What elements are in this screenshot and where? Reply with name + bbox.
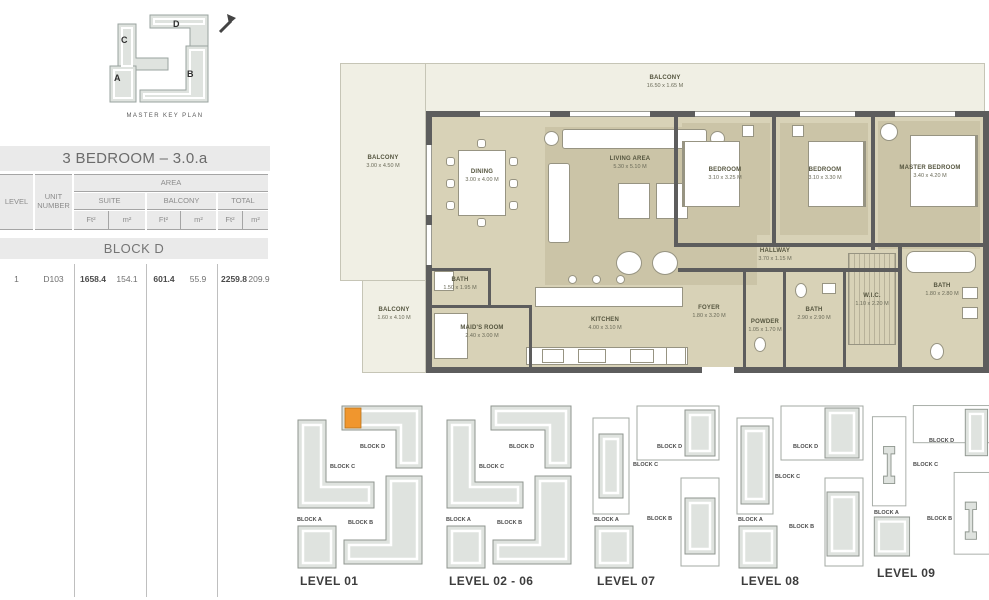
col-header-unit-number: UNIT NUMBER (35, 174, 72, 230)
block-header: BLOCK D (0, 238, 268, 259)
level-plan-08-drawing (729, 398, 869, 570)
room-label-balcony-bottom: BALCONY 1.60 x 4.10 M (366, 307, 422, 321)
block-d-label: BLOCK D (360, 444, 385, 450)
dining-chair (477, 218, 486, 227)
wall (674, 117, 678, 245)
room-label-living: LIVING AREA 5.30 x 5.10 M (585, 156, 675, 170)
room-label-bath1: BATH 1.50 x 1.95 M (432, 277, 488, 291)
block-b-label: BLOCK B (497, 520, 522, 526)
key-block-d-letter: D (173, 19, 180, 29)
block-c-label: BLOCK C (775, 474, 800, 480)
room-label-hallway: HALLWAY 3.70 x 1.15 M (735, 248, 815, 262)
stove (578, 349, 606, 363)
level-plan-01-drawing (288, 398, 428, 570)
level-label: LEVEL 01 (300, 574, 358, 588)
toilet (754, 337, 766, 352)
level-plan-07: BLOCK D BLOCK C BLOCK A BLOCK B LEVEL 07 (585, 398, 733, 600)
row-balcony-m2: 55.9 (182, 271, 214, 287)
room-label-master-bedroom: MASTER BEDROOM 3.40 x 4.20 M (898, 165, 962, 179)
row-level: 1 (0, 271, 33, 287)
block-a-label: BLOCK A (446, 517, 471, 523)
wall (432, 305, 532, 308)
dining-chair (477, 139, 486, 148)
level-plan-01: BLOCK D BLOCK C BLOCK A BLOCK B LEVEL 01 (288, 398, 436, 600)
sofa (548, 163, 570, 243)
nightstand (742, 125, 754, 137)
armchair (880, 123, 898, 141)
key-block-a-letter: A (114, 73, 121, 83)
level-plan-09-drawing (865, 398, 989, 558)
dining-chair (509, 201, 518, 210)
level-plan-07-drawing (585, 398, 725, 570)
room-label-bath2: BATH 2.90 x 2.90 M (786, 307, 842, 321)
block-d-label: BLOCK D (929, 438, 954, 444)
block-a-label: BLOCK A (738, 517, 763, 523)
room-label-bath3: BATH 1.80 x 2.80 M (910, 283, 974, 297)
block-d-label: BLOCK D (509, 444, 534, 450)
room-label-bedroom1: BEDROOM 3.10 x 3.25 M (685, 167, 765, 181)
page-title: 3 BEDROOM – 3.0.a (0, 146, 270, 171)
block-b-label: BLOCK B (348, 520, 373, 526)
nightstand (792, 125, 804, 137)
master-key-plan-drawing (90, 10, 240, 110)
side-table (544, 131, 559, 146)
col-header-total-m2: m² (243, 211, 268, 230)
row-total-m2: 209.9 (245, 271, 273, 287)
wall (871, 117, 875, 250)
master-key-plan-caption: MASTER KEY PLAN (85, 113, 245, 119)
level-label: LEVEL 02 - 06 (449, 574, 533, 588)
room-label-powder: POWDER 1.05 x 1.70 M (744, 319, 786, 333)
toilet (930, 343, 944, 360)
balcony-door (426, 145, 432, 215)
bar-stool (568, 275, 577, 284)
block-b-label: BLOCK B (927, 516, 952, 522)
wall (983, 111, 989, 373)
key-block-b-letter: B (187, 69, 194, 79)
level-label: LEVEL 09 (877, 566, 935, 580)
level-label: LEVEL 07 (597, 574, 655, 588)
block-c-label: BLOCK C (479, 464, 504, 470)
level-plan-08: BLOCK D BLOCK C BLOCK A BLOCK B LEVEL 08 (729, 398, 877, 600)
room-label-balcony-top: BALCONY 16.50 x 1.65 M (620, 75, 710, 89)
floor-plan-sheet: D C B A MASTER KEY PLAN 3 BEDROOM – 3.0.… (0, 0, 989, 600)
toilet (795, 283, 807, 298)
wall (843, 270, 846, 367)
bar-stool (592, 275, 601, 284)
room-label-bedroom2: BEDROOM 3.10 x 3.30 M (785, 167, 865, 181)
armchair (652, 251, 678, 275)
wall (772, 117, 776, 245)
window (895, 111, 955, 117)
col-header-balcony: BALCONY (147, 193, 216, 210)
room-label-wic: W.I.C. 1.10 x 2.20 M (845, 293, 899, 307)
washbasin (822, 283, 836, 294)
wall (432, 268, 490, 271)
block-c-label: BLOCK C (913, 462, 938, 468)
col-header-area: AREA (74, 174, 268, 192)
col-header-suite-ft2: Ft² (74, 211, 109, 230)
block-d-label: BLOCK D (793, 444, 818, 450)
block-d-label: BLOCK D (657, 444, 682, 450)
key-block-c-letter: C (121, 35, 128, 45)
level-plan-09: BLOCK D BLOCK C BLOCK A BLOCK B LEVEL 09 (865, 398, 989, 600)
window (570, 111, 650, 117)
level-label: LEVEL 08 (741, 574, 799, 588)
balcony-left (340, 63, 426, 281)
washbasin (962, 307, 978, 319)
row-balcony-ft2: 601.4 (148, 271, 180, 287)
block-b-label: BLOCK B (647, 516, 672, 522)
window (800, 111, 855, 117)
wall (678, 268, 900, 272)
room-label-foyer: FOYER 1.80 x 3.20 M (677, 305, 741, 319)
block-c-label: BLOCK C (633, 462, 658, 468)
entrance-door-opening (702, 367, 734, 373)
fridge (666, 347, 686, 365)
north-arrow-icon (220, 14, 236, 32)
window (480, 111, 550, 117)
bathtub (906, 251, 976, 273)
oven (630, 349, 654, 363)
dining-chair (509, 157, 518, 166)
col-header-suite-m2: m² (109, 211, 145, 230)
row-unit-number: D103 (35, 271, 72, 287)
window (426, 225, 432, 265)
block-c-label: BLOCK C (330, 464, 355, 470)
block-a-label: BLOCK A (594, 517, 619, 523)
master-key-plan: D C B A MASTER KEY PLAN (85, 5, 245, 130)
dining-chair (446, 201, 455, 210)
col-header-total-ft2: Ft² (218, 211, 243, 230)
balcony-bottom-left (362, 280, 426, 373)
wall (674, 243, 983, 247)
col-header-balcony-m2: m² (181, 211, 216, 230)
table-grid-line (146, 264, 147, 597)
room-label-maids-room: MAID'S ROOM 2.40 x 3.00 M (442, 325, 522, 339)
row-suite-m2: 154.1 (111, 271, 143, 287)
col-header-balcony-ft2: Ft² (147, 211, 181, 230)
room-label-balcony-left: BALCONY 3.00 x 4.50 M (348, 155, 418, 169)
col-header-level: LEVEL (0, 174, 33, 230)
block-b-label: BLOCK B (789, 524, 814, 530)
dining-chair (446, 157, 455, 166)
kitchen-island (535, 287, 683, 307)
room-label-kitchen: KITCHEN 4.00 x 3.10 M (565, 317, 645, 331)
armchair (616, 251, 642, 275)
room-label-dining: DINING 3.00 x 4.00 M (447, 169, 517, 183)
table-grid-line (74, 264, 75, 597)
block-a-label: BLOCK A (874, 510, 899, 516)
level-plan-02-06-drawing (437, 398, 577, 570)
block-a-label: BLOCK A (297, 517, 322, 523)
col-header-suite: SUITE (74, 193, 145, 210)
wall (529, 305, 532, 367)
bar-stool (616, 275, 625, 284)
coffee-table (618, 183, 650, 219)
unit-floor-plan: BALCONY 16.50 x 1.65 M BALCONY 3.00 x 4.… (330, 55, 989, 400)
highlighted-unit (345, 408, 361, 428)
row-suite-ft2: 1658.4 (76, 271, 110, 287)
col-header-total: TOTAL (218, 193, 268, 210)
table-grid-line (217, 264, 218, 597)
sink-unit (542, 349, 564, 363)
level-plan-02-06: BLOCK D BLOCK C BLOCK A BLOCK B LEVEL 02… (437, 398, 585, 600)
window (695, 111, 750, 117)
wall (488, 268, 491, 308)
